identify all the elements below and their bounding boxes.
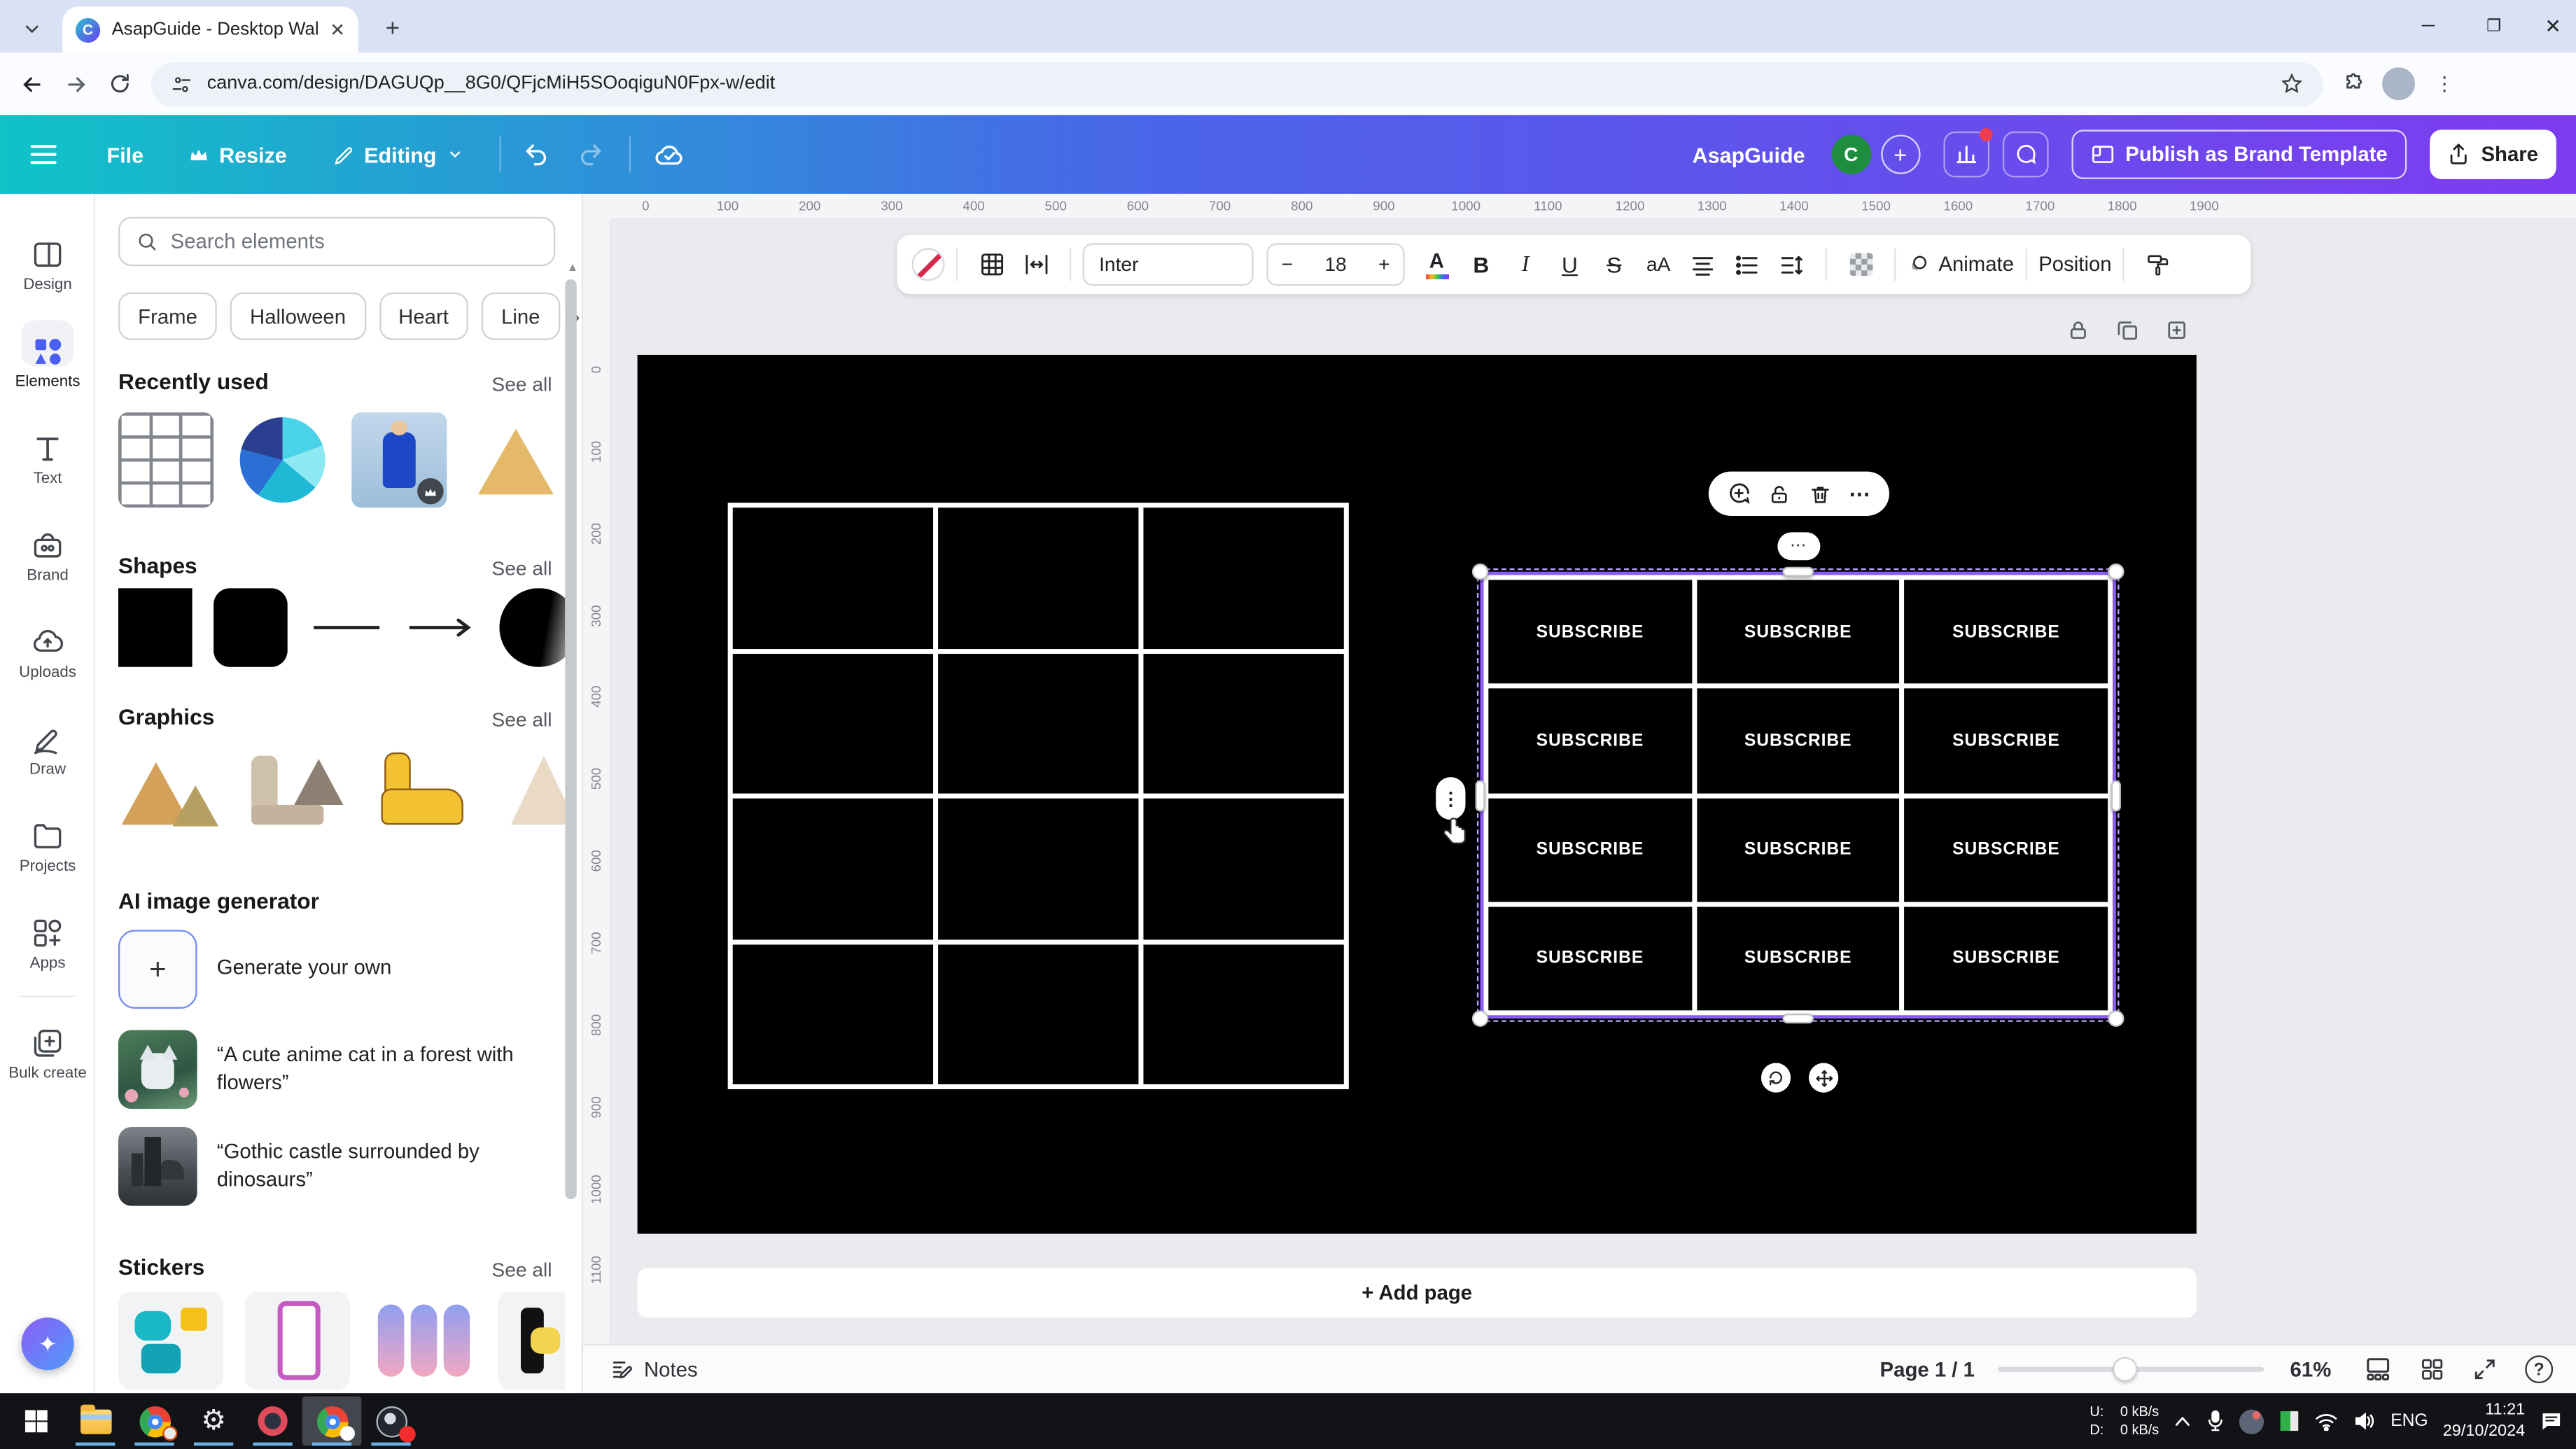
- ruler-tick: 400: [589, 686, 603, 708]
- grid-cell[interactable]: [938, 507, 1138, 648]
- tab-search-chevron-icon[interactable]: [16, 13, 45, 43]
- grid-cell[interactable]: [938, 653, 1138, 794]
- language-indicator[interactable]: ENG: [2390, 1411, 2428, 1431]
- delete-icon[interactable]: [1808, 482, 1831, 505]
- line-spacing-button[interactable]: [1770, 254, 1814, 276]
- grid-cell[interactable]: [733, 653, 933, 794]
- ruler-tick: 1100: [1534, 199, 1562, 213]
- sidebar-item-apps[interactable]: Apps: [0, 899, 95, 990]
- ruler-tick: 1600: [1943, 199, 1973, 213]
- browser-toolbar: canva.com/design/DAGUQp__8G0/QFjcMiH5SOo…: [0, 52, 2576, 115]
- subscribe-table[interactable]: SUBSCRIBESUBSCRIBESUBSCRIBESUBSCRIBESUBS…: [1483, 575, 2113, 1015]
- prompt-cat-text: “A cute anime cat in a forest with flowe…: [217, 1041, 559, 1098]
- ruler-tick: 500: [589, 768, 603, 790]
- panel-scrollbar[interactable]: [565, 279, 576, 1199]
- chevron-down-icon: [447, 146, 463, 162]
- grid-cell[interactable]: [733, 799, 933, 939]
- ruler-tick: 1400: [1779, 199, 1809, 213]
- sticker-phone[interactable]: [245, 1291, 350, 1390]
- graphics-row: [118, 743, 565, 841]
- draw-icon: [31, 723, 64, 756]
- selection-handle-ne[interactable]: [2108, 563, 2124, 580]
- zoom-slider-knob[interactable]: [2113, 1357, 2137, 1382]
- section-graphics: Graphics: [118, 705, 214, 729]
- publish-brand-template-button[interactable]: Publish as Brand Template: [2071, 129, 2407, 178]
- animate-icon: [1907, 253, 1931, 276]
- pencil-icon: [333, 143, 355, 165]
- section-recently-used: Recently used: [118, 370, 269, 394]
- prompt-cat-row[interactable]: “A cute anime cat in a forest with flowe…: [118, 1030, 559, 1109]
- projects-icon: [31, 820, 64, 853]
- sticker-hand[interactable]: [498, 1291, 565, 1390]
- resize-menu[interactable]: Resize: [190, 142, 287, 167]
- sidebar-item-elements[interactable]: Elements: [0, 317, 95, 409]
- shape-square[interactable]: [118, 588, 192, 667]
- wifi-icon[interactable]: [2315, 1412, 2338, 1430]
- browser-menu-icon[interactable]: ⋮: [2435, 72, 2456, 95]
- bulk-create-icon: [31, 1027, 64, 1060]
- list-button[interactable]: [1725, 254, 1769, 276]
- ruler-tick: 1200: [1616, 199, 1645, 213]
- side-rail: Design Elements Text Brand Uploads Draw …: [0, 194, 95, 1393]
- context-toolbar: Inter − 18 + A B I U S aA Animate Positi…: [897, 235, 2250, 294]
- recent-table-thumb[interactable]: [118, 412, 213, 507]
- subscribe-cell[interactable]: SUBSCRIBE: [1488, 580, 1691, 683]
- notification-center-icon[interactable]: [2540, 1410, 2563, 1433]
- ruler-tick: 200: [799, 199, 820, 213]
- ruler-vertical: 010020030040050060070080090010001100: [583, 220, 611, 1393]
- rail-divider: [20, 995, 76, 997]
- notes-button[interactable]: Notes: [611, 1358, 698, 1381]
- account-avatar[interactable]: C: [1831, 134, 1870, 174]
- chip-halloween[interactable]: Halloween: [230, 293, 365, 340]
- subscribe-cell[interactable]: SUBSCRIBE: [1905, 906, 2108, 1010]
- graphic-cone[interactable]: [498, 743, 565, 838]
- fullscreen-button[interactable]: [2472, 1357, 2497, 1382]
- recent-pie-chart-thumb[interactable]: [235, 412, 330, 507]
- grid-cell[interactable]: [938, 799, 1138, 939]
- ruler-tick: 300: [881, 199, 902, 213]
- zoom-slider[interactable]: [1998, 1367, 2264, 1372]
- bookmark-star-icon[interactable]: [2281, 72, 2304, 95]
- ruler-tick: 200: [589, 522, 603, 544]
- panel-scroll-up-icon[interactable]: ▲: [567, 263, 578, 274]
- undo-icon[interactable]: [524, 141, 550, 168]
- subscribe-cell[interactable]: SUBSCRIBE: [1697, 689, 1900, 792]
- ruler-tick: 900: [589, 1095, 603, 1117]
- column-width-icon[interactable]: [1014, 253, 1058, 276]
- ruler-tick: 700: [589, 932, 603, 953]
- recently-used-see-all[interactable]: See all: [491, 373, 552, 396]
- transparency-button[interactable]: [1838, 253, 1882, 276]
- ruler-tick: 1000: [589, 1174, 603, 1203]
- recent-triangle-thumb[interactable]: [468, 412, 563, 507]
- canva-assistant-button[interactable]: ✦: [22, 1317, 74, 1370]
- template-icon: [2091, 145, 2114, 164]
- tray-display-icon[interactable]: [2279, 1410, 2301, 1433]
- chrome-secondary-icon[interactable]: [125, 1396, 183, 1445]
- graphic-golden-sphinx[interactable]: [371, 743, 476, 838]
- elements-panel: Frame Halloween Heart Line › Recently us…: [95, 194, 583, 1393]
- browser-tab-strip: C AsapGuide - Desktop Wallpaper ✕ + ─ ❐ …: [0, 0, 2576, 52]
- bold-button[interactable]: B: [1459, 252, 1503, 276]
- sidebar-item-bulk-create[interactable]: Bulk create: [0, 1009, 95, 1100]
- reload-icon[interactable]: [108, 72, 132, 95]
- prompt-castle-row[interactable]: “Gothic castle surrounded by dinosaurs”: [118, 1127, 559, 1206]
- grid-cell[interactable]: [733, 944, 933, 1084]
- selection-toolbar: ⋯: [1709, 472, 1889, 516]
- selection-handle-bottom[interactable]: [1782, 1014, 1814, 1023]
- comments-button[interactable]: [2002, 132, 2048, 178]
- ruler-corner: [583, 194, 611, 220]
- ruler-tick: 1500: [1861, 199, 1891, 213]
- duplicate-page-icon[interactable]: [2116, 318, 2139, 342]
- grid-cell[interactable]: [938, 944, 1138, 1084]
- shape-circle[interactable]: [499, 588, 565, 667]
- browser-tab[interactable]: C AsapGuide - Desktop Wallpaper ✕: [62, 6, 358, 52]
- subscribe-cell[interactable]: SUBSCRIBE: [1905, 580, 2108, 683]
- recent-photo-thumb[interactable]: [351, 412, 447, 507]
- ruler-tick: 1000: [1451, 199, 1480, 213]
- sidebar-item-draw[interactable]: Draw: [0, 705, 95, 797]
- recently-used-row: [118, 412, 565, 507]
- profile-avatar[interactable]: [2382, 67, 2415, 100]
- ruler-tick: 600: [1127, 199, 1149, 213]
- generate-your-own-row[interactable]: + Generate your own: [118, 930, 559, 1009]
- font-size-increase[interactable]: +: [1378, 253, 1389, 276]
- position-button[interactable]: Position: [2038, 253, 2111, 276]
- italic-button[interactable]: I: [1503, 251, 1547, 278]
- ruler-tick: 1100: [589, 1256, 603, 1284]
- underline-button[interactable]: U: [1548, 252, 1592, 276]
- design-icon: [31, 238, 64, 271]
- alignment-button[interactable]: [1681, 254, 1725, 276]
- text-case-button[interactable]: aA: [1637, 253, 1681, 276]
- ruler-tick: 1700: [2026, 199, 2055, 213]
- ruler-tick: 800: [589, 1014, 603, 1035]
- ruler-tick: 0: [589, 366, 603, 373]
- comment-icon: [2014, 143, 2037, 166]
- sidebar-item-design[interactable]: Design: [0, 220, 95, 311]
- settings-icon[interactable]: ⚙: [184, 1396, 243, 1445]
- canva-favicon: C: [76, 17, 100, 42]
- prompt-cat-image: [118, 1030, 197, 1109]
- border-color-swatch[interactable]: [912, 248, 945, 281]
- subscribe-cell[interactable]: SUBSCRIBE: [1697, 797, 1900, 901]
- ruler-tick: 1800: [2108, 199, 2137, 213]
- add-page-icon[interactable]: [2165, 318, 2188, 342]
- file-menu[interactable]: File: [107, 142, 144, 167]
- subscribe-cell[interactable]: SUBSCRIBE: [1905, 689, 2108, 792]
- ruler-tick: 1900: [2190, 199, 2219, 213]
- system-tray: U:0 kB/s D:0 kB/s ENG 11:2129/10/2024: [2089, 1400, 2576, 1443]
- section-shapes: Shapes: [118, 554, 197, 578]
- stickers-row: [118, 1291, 565, 1390]
- ruler-tick: 500: [1045, 199, 1067, 213]
- stickers-see-all[interactable]: See all: [491, 1259, 552, 1282]
- obs-icon[interactable]: [361, 1396, 420, 1445]
- chrome-active-icon[interactable]: [302, 1396, 361, 1445]
- subscribe-cell[interactable]: SUBSCRIBE: [1697, 906, 1900, 1010]
- ruler-tick: 100: [717, 199, 738, 213]
- tray-app-icon[interactable]: [2239, 1409, 2264, 1434]
- screen: C AsapGuide - Desktop Wallpaper ✕ + ─ ❐ …: [0, 0, 2576, 1449]
- animate-button[interactable]: Animate: [1907, 253, 2014, 276]
- window-minimize-button[interactable]: ─: [2402, 0, 2454, 52]
- subscribe-cell[interactable]: SUBSCRIBE: [1488, 689, 1691, 792]
- selection-handle-sw[interactable]: [1472, 1010, 1488, 1026]
- clock[interactable]: 11:2129/10/2024: [2443, 1400, 2525, 1443]
- start-button[interactable]: [6, 1396, 65, 1445]
- chart-icon: [1954, 143, 1977, 166]
- ruler-tick: 400: [962, 199, 984, 213]
- generate-your-own-label: Generate your own: [217, 955, 392, 983]
- filter-chips: Frame Halloween Heart Line ›: [118, 293, 580, 340]
- ruler-tick: 900: [1373, 199, 1394, 213]
- shape-rounded-square[interactable]: [213, 588, 288, 667]
- graphic-pyramids[interactable]: [118, 743, 223, 838]
- chip-line[interactable]: Line: [482, 293, 560, 340]
- font-family-select[interactable]: Inter: [1083, 243, 1254, 286]
- generate-plus-icon: +: [118, 930, 197, 1009]
- search-icon: [136, 230, 157, 253]
- forward-icon[interactable]: [64, 71, 89, 96]
- ruler-tick: 100: [589, 440, 603, 462]
- selection-handle-right[interactable]: [2111, 780, 2121, 812]
- grid-cell[interactable]: [1143, 653, 1343, 794]
- elements-icon: [31, 335, 64, 368]
- shape-line[interactable]: [309, 588, 383, 667]
- add-member-button[interactable]: +: [1881, 134, 1920, 174]
- move-handle[interactable]: [1809, 1063, 1838, 1092]
- text-color-button[interactable]: A: [1415, 251, 1459, 279]
- grid-cell[interactable]: [733, 507, 933, 648]
- file-explorer-icon[interactable]: [66, 1396, 125, 1445]
- window-close-button[interactable]: ✕: [2530, 0, 2576, 52]
- subscribe-cell[interactable]: SUBSCRIBE: [1697, 580, 1900, 683]
- prompt-castle-image: [118, 1127, 197, 1206]
- help-button[interactable]: ?: [2525, 1355, 2553, 1383]
- ruler-tick: 600: [589, 850, 603, 871]
- subscribe-cell[interactable]: SUBSCRIBE: [1905, 797, 2108, 901]
- pro-crown-badge: [417, 478, 444, 505]
- sidebar-item-brand[interactable]: Brand: [0, 511, 95, 603]
- apps-icon: [31, 917, 64, 950]
- selection-handle-nw[interactable]: [1472, 563, 1488, 580]
- url-text: canva.com/design/DAGUQp__8G0/QFjcMiH5SOo…: [207, 74, 776, 94]
- brand-icon: [31, 529, 64, 562]
- row-drag-handle[interactable]: ⋮: [1436, 777, 1465, 820]
- page-indicator: Page 1 / 1: [1880, 1358, 1975, 1381]
- uploads-icon: [31, 626, 64, 659]
- taskbar: ⚙ U:0 kB/s D:0 kB/s: [0, 1393, 2576, 1449]
- lock-icon[interactable]: [1768, 482, 1791, 505]
- extensions-icon[interactable]: [2343, 72, 2366, 95]
- ruler-tick: 1300: [1697, 199, 1727, 213]
- crown-icon: [190, 146, 209, 162]
- search-input[interactable]: [171, 230, 538, 253]
- ruler-tick: 0: [642, 199, 649, 213]
- account-name: AsapGuide: [1693, 142, 1805, 167]
- page-actions: [2066, 318, 2188, 342]
- share-button[interactable]: Share: [2430, 129, 2556, 178]
- grid-cell[interactable]: [1143, 799, 1343, 939]
- sticker-gradient-blobs[interactable]: [371, 1291, 476, 1390]
- redo-icon[interactable]: [576, 141, 603, 168]
- tab-title: AsapGuide - Desktop Wallpaper: [112, 20, 318, 39]
- menu-icon[interactable]: [29, 143, 57, 166]
- sidebar-item-text[interactable]: Text: [0, 414, 95, 505]
- recorder-app-icon[interactable]: [243, 1396, 302, 1445]
- canva-toolbar: File Resize Editing AsapGuide C + Publis…: [0, 115, 2576, 194]
- subscribe-cell[interactable]: SUBSCRIBE: [1488, 906, 1691, 1010]
- text-icon: [31, 432, 64, 465]
- chip-heart[interactable]: Heart: [379, 293, 468, 340]
- more-options-icon[interactable]: ⋯: [1849, 480, 1872, 507]
- tray-expand-icon[interactable]: [2173, 1415, 2192, 1428]
- cloud-saved-icon: [653, 141, 685, 168]
- back-icon[interactable]: [20, 71, 44, 96]
- graphics-see-all[interactable]: See all: [491, 708, 552, 731]
- hand-cursor: [1439, 815, 1472, 851]
- ruler-horizontal: 0100200300400500600700800900100011001200…: [611, 194, 2576, 220]
- shape-arrow[interactable]: [404, 588, 478, 667]
- font-size-value: 18: [1324, 253, 1346, 276]
- font-size-decrease[interactable]: −: [1282, 253, 1293, 276]
- share-icon: [2449, 143, 2470, 166]
- url-bar[interactable]: canva.com/design/DAGUQp__8G0/QFjcMiH5SOo…: [151, 62, 2323, 106]
- grid-cell[interactable]: [1143, 944, 1343, 1084]
- chip-frame[interactable]: Frame: [118, 293, 217, 340]
- section-stickers: Stickers: [118, 1255, 204, 1280]
- comment-add-icon[interactable]: [1726, 482, 1751, 506]
- graphic-sphinx[interactable]: [245, 743, 350, 838]
- copy-style-button[interactable]: [2136, 252, 2180, 276]
- selection-handle-se[interactable]: [2108, 1010, 2124, 1026]
- add-page-button[interactable]: + Add page: [638, 1268, 2197, 1317]
- status-bar: Notes Page 1 / 1 61% ?: [583, 1344, 2576, 1393]
- editing-mode-dropdown[interactable]: Editing: [333, 142, 463, 167]
- site-settings-icon[interactable]: [171, 73, 192, 94]
- network-speed: U:0 kB/s D:0 kB/s: [2089, 1403, 2159, 1438]
- empty-grid[interactable]: [728, 503, 1349, 1089]
- ruler-tick: 800: [1291, 199, 1312, 213]
- notes-icon: [611, 1358, 634, 1381]
- sidebar-item-uploads[interactable]: Uploads: [0, 608, 95, 699]
- subscribe-cell[interactable]: SUBSCRIBE: [1488, 797, 1691, 901]
- zoom-level: 61%: [2290, 1358, 2332, 1381]
- tab-close-icon[interactable]: ✕: [330, 19, 345, 41]
- microphone-icon[interactable]: [2206, 1410, 2225, 1433]
- search-box[interactable]: [118, 217, 555, 266]
- shapes-row: [118, 588, 565, 667]
- notification-dot: [1979, 128, 1992, 141]
- font-size-stepper[interactable]: − 18 +: [1266, 243, 1404, 286]
- grid-view-button[interactable]: [2420, 1357, 2444, 1382]
- shapes-see-all[interactable]: See all: [491, 557, 552, 580]
- sidebar-item-projects[interactable]: Projects: [0, 801, 95, 893]
- ruler-tick: 300: [589, 604, 603, 626]
- rotate-handle[interactable]: [1761, 1063, 1791, 1092]
- volume-icon[interactable]: [2353, 1411, 2376, 1431]
- window-maximize-button[interactable]: ❐: [2467, 0, 2520, 52]
- grid-cell[interactable]: [1143, 507, 1343, 648]
- ruler-tick: 700: [1209, 199, 1231, 213]
- prompt-castle-text: “Gothic castle surrounded by dinosaurs”: [217, 1138, 559, 1195]
- table-options-pill[interactable]: ⋯: [1777, 532, 1820, 560]
- pages-view-button[interactable]: [2364, 1357, 2392, 1382]
- section-ai-generator: AI image generator: [118, 889, 319, 913]
- selection-handle-top[interactable]: [1782, 567, 1814, 577]
- new-tab-button[interactable]: +: [378, 13, 407, 43]
- selection-handle-left[interactable]: [1476, 780, 1485, 812]
- insights-button[interactable]: [1943, 132, 1989, 178]
- strikethrough-button[interactable]: S: [1592, 252, 1636, 276]
- table-style-icon[interactable]: [969, 251, 1014, 278]
- lock-page-icon[interactable]: [2066, 318, 2089, 342]
- sticker-robot[interactable]: [118, 1291, 223, 1390]
